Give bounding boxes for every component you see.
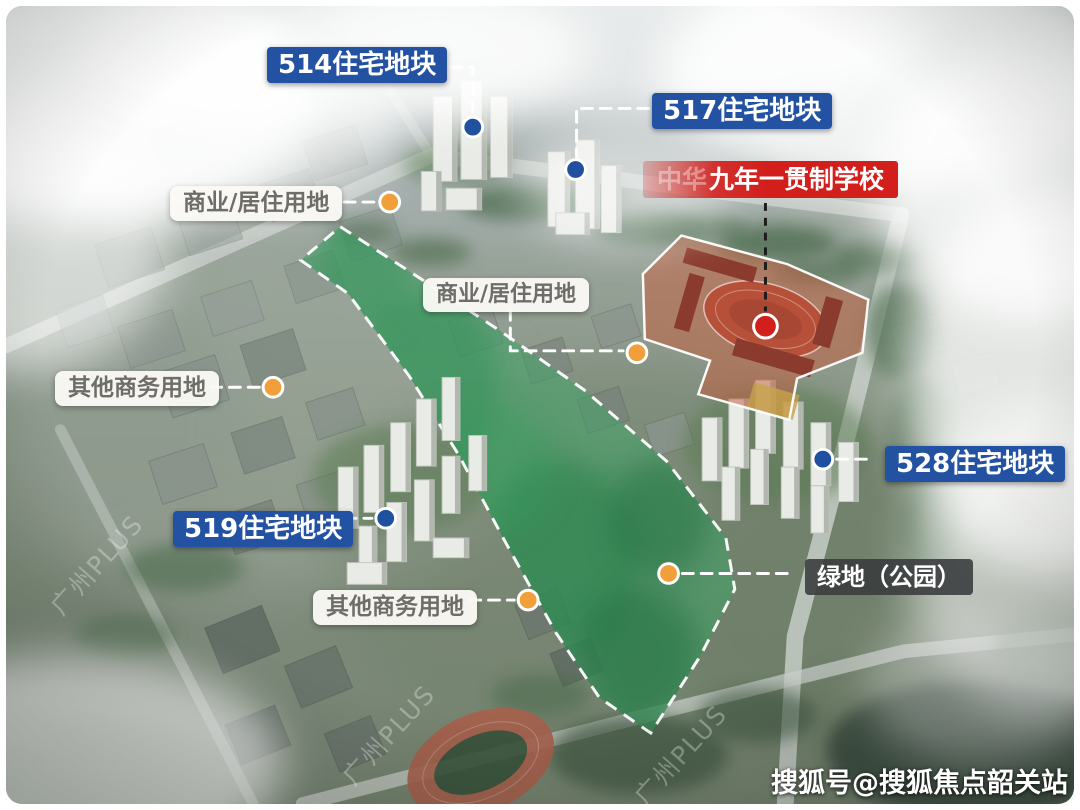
label-other-business-south: 其他商务用地 xyxy=(313,590,477,625)
marker-plot-519 xyxy=(376,508,396,528)
label-other-business-west: 其他商务用地 xyxy=(55,371,219,406)
marker-school xyxy=(754,314,778,338)
marker-commercial-north xyxy=(380,192,400,212)
aerial-site-plan: 514住宅地块 517住宅地块 中华 九年一贯制学校 商业/居住用地 商业/居住… xyxy=(6,6,1074,804)
marker-plot-528 xyxy=(813,449,833,469)
label-plot-528: 528住宅地块 xyxy=(885,446,1065,482)
marker-business-west xyxy=(263,377,283,397)
marker-plot-514 xyxy=(463,117,483,137)
label-commercial-residential-north: 商业/居住用地 xyxy=(170,186,342,221)
watermark-sohu: 搜狐号@搜狐焦点韶关站 xyxy=(771,761,1068,800)
label-plot-514: 514住宅地块 xyxy=(267,47,447,83)
label-school-faded-prefix: 中华 xyxy=(657,167,707,192)
marker-business-south xyxy=(518,590,538,610)
label-green-park: 绿地（公园） xyxy=(805,559,973,595)
label-school: 中华 九年一贯制学校 xyxy=(643,161,898,198)
label-commercial-residential-central: 商业/居住用地 xyxy=(423,278,589,312)
label-plot-517: 517住宅地块 xyxy=(652,93,832,129)
marker-green-park xyxy=(659,564,679,584)
screenshot-frame: 514住宅地块 517住宅地块 中华 九年一贯制学校 商业/居住用地 商业/居住… xyxy=(0,0,1080,810)
marker-plot-517 xyxy=(566,160,586,180)
label-plot-519: 519住宅地块 xyxy=(173,511,353,547)
label-school-text: 九年一贯制学校 xyxy=(709,167,884,192)
marker-commercial-central xyxy=(627,343,647,363)
